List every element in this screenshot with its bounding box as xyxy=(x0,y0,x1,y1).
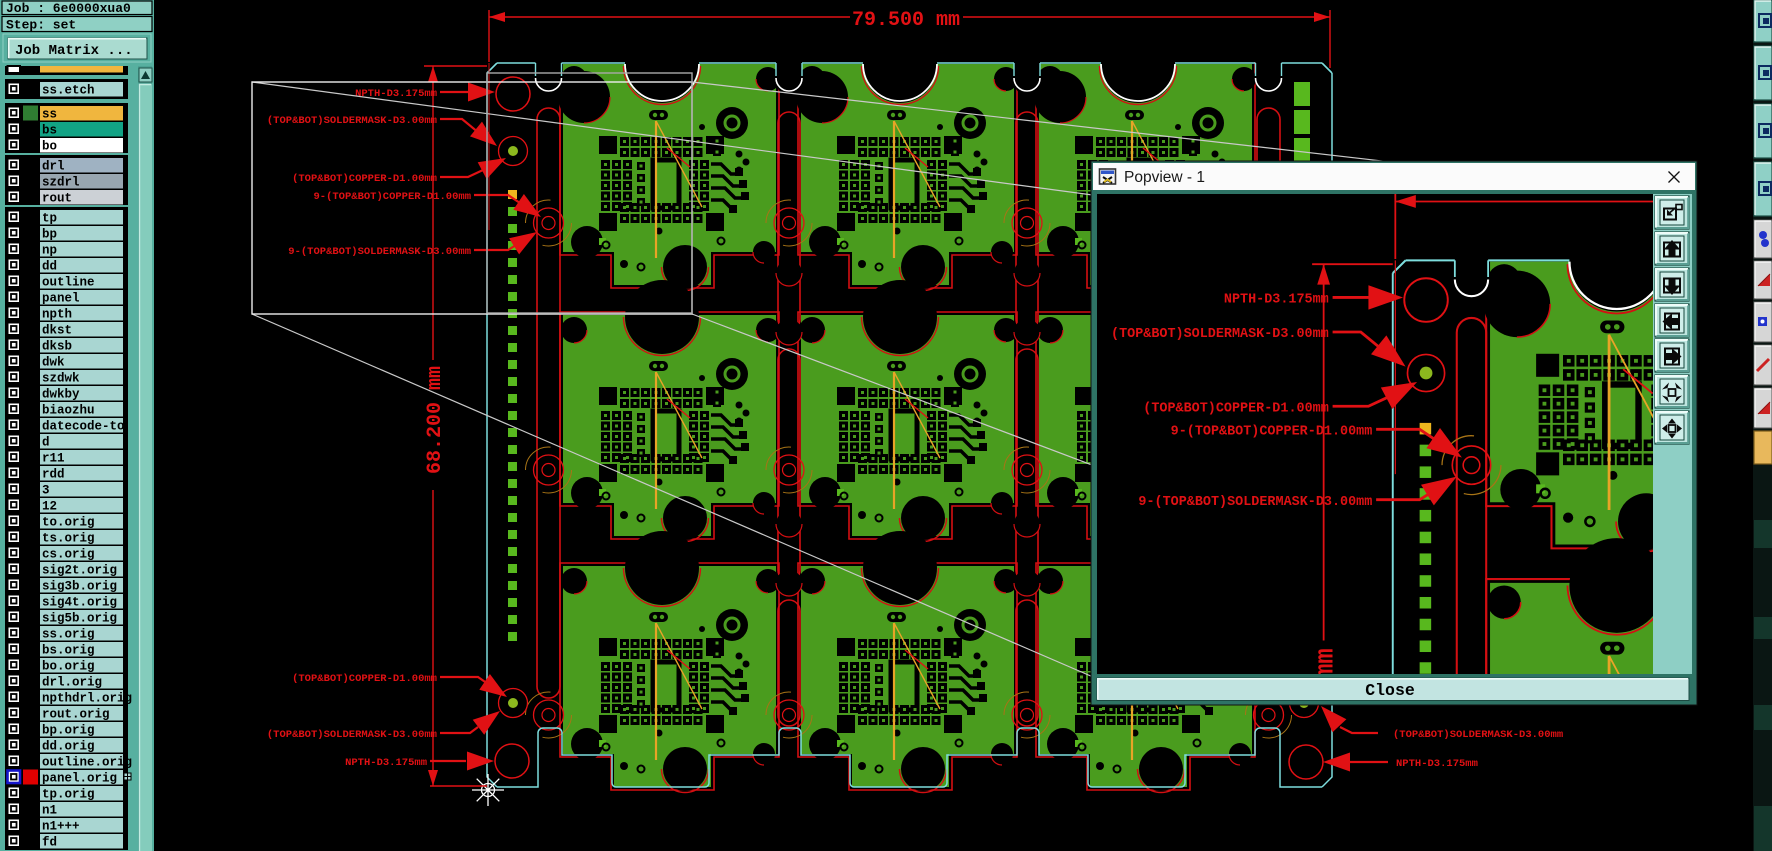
svg-text:bp: bp xyxy=(42,228,57,242)
svg-text:bo.orig: bo.orig xyxy=(42,660,95,674)
svg-text:outline: outline xyxy=(42,276,95,290)
svg-text:dd.orig: dd.orig xyxy=(42,740,95,754)
svg-text:tp.orig: tp.orig xyxy=(42,788,95,802)
svg-text:tp: tp xyxy=(42,212,57,226)
svg-text:npthdrl.orig: npthdrl.orig xyxy=(42,692,132,706)
svg-text:to.orig: to.orig xyxy=(42,516,95,530)
svg-text:bp.orig: bp.orig xyxy=(42,724,95,738)
svg-text:ss: ss xyxy=(42,108,57,122)
svg-text:panel: panel xyxy=(42,292,80,306)
svg-text:panel.orig: panel.orig xyxy=(42,772,117,786)
svg-text:bs: bs xyxy=(42,124,57,138)
svg-text:drl.orig: drl.orig xyxy=(42,676,102,690)
svg-text:npth: npth xyxy=(42,308,72,322)
svg-text:Step: set: Step: set xyxy=(6,18,76,33)
svg-text:sig2t.orig: sig2t.orig xyxy=(42,564,117,578)
svg-text:n1: n1 xyxy=(42,804,57,818)
svg-text:ss.etch: ss.etch xyxy=(42,84,95,98)
svg-text:Job : 6e0000xua0: Job : 6e0000xua0 xyxy=(6,1,131,16)
svg-text:ss.orig: ss.orig xyxy=(42,628,95,642)
svg-text:drl: drl xyxy=(42,160,65,174)
svg-text:Close: Close xyxy=(1365,681,1415,700)
svg-text:rdd: rdd xyxy=(42,468,65,482)
svg-text:dwkby: dwkby xyxy=(42,388,80,402)
svg-text:dksb: dksb xyxy=(42,340,72,354)
svg-text:r11: r11 xyxy=(42,452,65,466)
svg-text:bo: bo xyxy=(42,140,57,154)
svg-text:bs.orig: bs.orig xyxy=(42,644,95,658)
svg-text:d: d xyxy=(42,436,50,450)
svg-text:dd: dd xyxy=(42,260,57,274)
svg-text:cs.orig: cs.orig xyxy=(42,548,95,562)
svg-text:sig3b.orig: sig3b.orig xyxy=(42,580,117,594)
svg-text:szdrl: szdrl xyxy=(42,176,80,190)
svg-text:sig4t.orig: sig4t.orig xyxy=(42,596,117,610)
svg-text:rout.orig: rout.orig xyxy=(42,708,110,722)
svg-text:ts.orig: ts.orig xyxy=(42,532,95,546)
svg-text:3: 3 xyxy=(42,484,50,498)
svg-text:np: np xyxy=(42,244,57,258)
svg-text:rout: rout xyxy=(42,192,72,206)
svg-text:Popview - 1: Popview - 1 xyxy=(1124,169,1205,186)
svg-text:datecode-to: datecode-to xyxy=(42,420,125,434)
svg-text:fd: fd xyxy=(42,836,57,850)
svg-text:Job Matrix ...: Job Matrix ... xyxy=(15,43,133,59)
svg-text:outline.orig: outline.orig xyxy=(42,756,132,770)
svg-text:dkst: dkst xyxy=(42,324,72,338)
svg-text:n1+++: n1+++ xyxy=(42,820,80,834)
svg-text:sig5b.orig: sig5b.orig xyxy=(42,612,117,626)
svg-text:dwk: dwk xyxy=(42,356,65,370)
svg-text:biaozhu: biaozhu xyxy=(42,404,95,418)
svg-text:12: 12 xyxy=(42,500,57,514)
svg-text:szdwk: szdwk xyxy=(42,372,80,386)
